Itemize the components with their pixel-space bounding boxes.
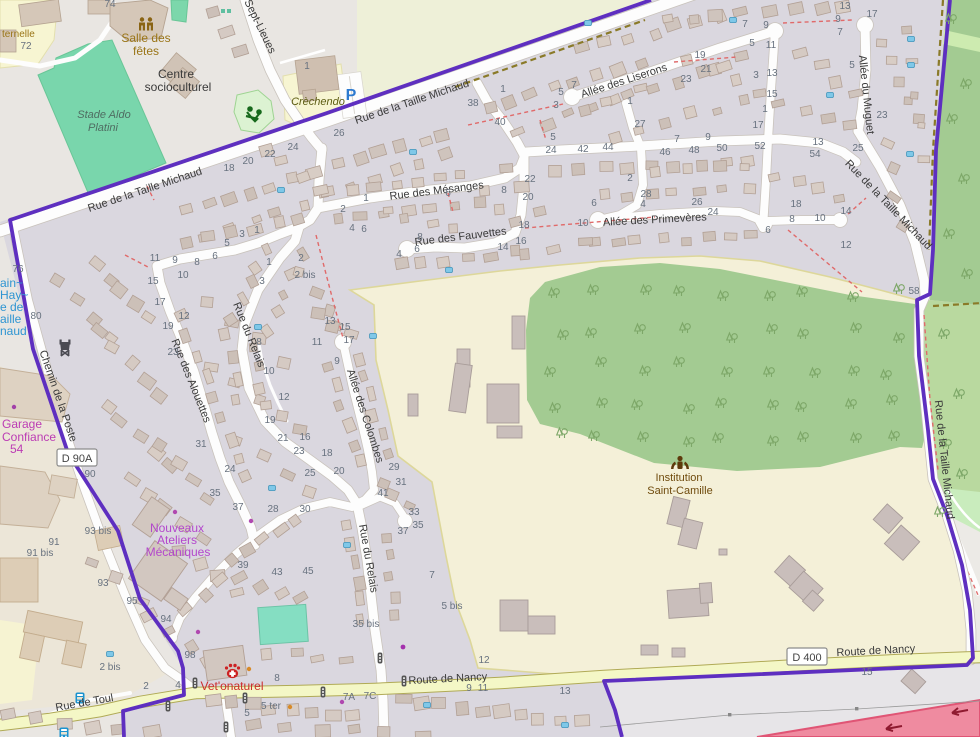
svg-text:9: 9 [334,356,340,367]
svg-text:21: 21 [700,64,712,75]
svg-text:9: 9 [172,255,178,266]
svg-text:26: 26 [691,197,703,208]
svg-text:Saint-Camille: Saint-Camille [647,485,712,497]
svg-text:8: 8 [256,337,262,348]
svg-text:13: 13 [766,68,778,79]
svg-text:6: 6 [414,244,420,255]
svg-text:10: 10 [577,218,589,229]
svg-text:9: 9 [763,20,769,31]
svg-text:15: 15 [147,276,159,287]
svg-text:5 bis: 5 bis [441,601,462,612]
svg-text:13: 13 [839,1,851,12]
svg-text:Institution: Institution [655,472,702,484]
svg-text:37: 37 [232,502,244,513]
svg-text:94: 94 [160,614,172,625]
svg-text:3: 3 [553,100,559,111]
svg-text:23: 23 [293,446,305,457]
svg-text:16: 16 [299,432,311,443]
svg-text:6: 6 [591,198,597,209]
svg-text:1: 1 [762,104,768,115]
svg-text:11: 11 [150,253,161,264]
svg-text:44: 44 [602,142,614,153]
svg-text:20: 20 [522,192,534,203]
svg-text:90: 90 [84,469,96,480]
svg-text:2: 2 [627,173,633,184]
svg-text:25: 25 [852,143,864,154]
svg-text:21: 21 [277,433,289,444]
svg-text:3: 3 [259,276,265,287]
svg-text:16: 16 [515,236,527,247]
svg-text:23: 23 [680,74,692,85]
svg-text:18: 18 [518,220,530,231]
svg-text:24: 24 [707,207,719,218]
svg-text:76: 76 [12,264,24,275]
svg-text:72: 72 [20,41,32,52]
svg-text:4: 4 [349,223,355,234]
svg-text:3: 3 [753,70,759,81]
svg-text:10: 10 [177,270,189,281]
svg-text:17: 17 [866,9,878,20]
svg-text:41: 41 [377,488,389,499]
svg-text:40: 40 [494,117,506,128]
svg-text:22: 22 [264,149,276,160]
svg-text:20: 20 [333,466,345,477]
svg-text:1: 1 [500,84,506,95]
svg-text:23: 23 [876,110,888,121]
svg-text:74: 74 [104,0,116,10]
svg-text:4: 4 [396,249,402,260]
svg-text:2 bis: 2 bis [294,270,315,281]
svg-text:13: 13 [559,686,571,697]
svg-text:2: 2 [298,253,304,264]
svg-text:fêtes: fêtes [133,44,159,58]
svg-text:12: 12 [478,655,490,666]
svg-text:Mécaniques: Mécaniques [146,545,211,559]
svg-text:7: 7 [674,134,680,145]
svg-text:91: 91 [48,537,60,548]
svg-text:9: 9 [466,683,472,694]
svg-text:25: 25 [304,468,316,479]
svg-text:17: 17 [343,335,355,346]
svg-text:naud: naud [0,324,27,338]
svg-text:Salle des: Salle des [121,31,170,45]
svg-text:6: 6 [765,225,771,236]
svg-text:24: 24 [545,145,557,156]
svg-text:8: 8 [789,214,795,225]
svg-text:5: 5 [749,38,755,49]
svg-text:Stade Aldo: Stade Aldo [77,109,130,121]
svg-text:18: 18 [790,199,802,210]
svg-text:13: 13 [324,316,336,327]
svg-text:22: 22 [524,174,536,185]
svg-text:10: 10 [263,366,275,377]
svg-text:54: 54 [10,442,24,456]
svg-text:7: 7 [429,570,435,581]
svg-text:17: 17 [154,297,166,308]
svg-text:93 bis: 93 bis [85,526,112,537]
svg-text:8: 8 [501,185,507,196]
svg-text:socioculturel: socioculturel [145,80,212,94]
svg-text:P: P [346,87,357,104]
svg-text:5 ter: 5 ter [261,701,282,712]
svg-text:91 bis: 91 bis [27,548,54,559]
svg-text:14: 14 [497,242,509,253]
svg-text:1: 1 [627,96,633,107]
svg-text:5: 5 [849,60,855,71]
svg-text:18: 18 [321,448,333,459]
svg-text:38: 38 [467,98,479,109]
svg-text:D 90A: D 90A [62,453,93,465]
svg-text:2: 2 [143,681,149,692]
svg-text:5: 5 [244,708,250,719]
svg-text:52: 52 [754,141,766,152]
svg-text:4: 4 [640,199,646,210]
svg-text:D 400: D 400 [792,652,821,664]
svg-text:95: 95 [126,596,138,607]
svg-text:20: 20 [242,156,254,167]
svg-text:39: 39 [237,560,249,571]
svg-text:98: 98 [184,650,196,661]
svg-text:1: 1 [254,225,260,236]
svg-text:80: 80 [30,311,42,322]
svg-text:Crèchendo: Crèchendo [291,96,345,108]
svg-text:37: 37 [397,526,409,537]
svg-text:18: 18 [223,163,235,174]
svg-text:14: 14 [840,206,852,217]
svg-text:2: 2 [340,204,346,215]
svg-text:11: 11 [766,40,777,51]
svg-text:Garage: Garage [2,417,42,431]
svg-text:10: 10 [814,213,826,224]
svg-text:15: 15 [861,667,873,678]
svg-text:46: 46 [659,147,671,158]
svg-text:ternelle: ternelle [2,29,35,40]
svg-text:11: 11 [478,683,489,694]
svg-text:9: 9 [705,132,711,143]
svg-text:1: 1 [363,193,369,204]
svg-text:31: 31 [395,477,407,488]
svg-text:15: 15 [766,89,778,100]
svg-text:12: 12 [840,240,852,251]
svg-text:24: 24 [287,142,299,153]
svg-text:Centre: Centre [158,67,194,81]
svg-text:45: 45 [302,566,314,577]
svg-text:11: 11 [312,337,323,348]
svg-text:28: 28 [267,504,279,515]
svg-text:9: 9 [835,14,841,25]
svg-text:7: 7 [571,80,577,91]
svg-text:Vet'onaturel: Vet'onaturel [200,679,263,693]
svg-text:12: 12 [278,392,290,403]
svg-text:48: 48 [688,145,700,156]
svg-text:35 bis: 35 bis [353,619,380,630]
svg-text:27: 27 [634,119,646,130]
svg-text:15: 15 [339,322,351,333]
svg-text:12: 12 [178,311,190,322]
svg-text:35: 35 [412,520,424,531]
svg-text:3: 3 [239,229,245,240]
svg-text:26: 26 [333,128,345,139]
svg-text:5: 5 [550,132,556,143]
svg-text:7C: 7C [364,691,377,702]
svg-text:43: 43 [271,567,283,578]
svg-text:8: 8 [417,232,423,243]
svg-text:6: 6 [212,251,218,262]
svg-text:4: 4 [175,680,181,691]
svg-text:58: 58 [908,286,920,297]
svg-text:6: 6 [361,224,367,235]
svg-text:13: 13 [812,137,824,148]
svg-text:54: 54 [809,149,821,160]
svg-text:19: 19 [264,415,276,426]
svg-text:50: 50 [716,143,728,154]
svg-text:7: 7 [837,27,843,38]
svg-text:7: 7 [742,19,748,30]
svg-text:33: 33 [408,507,420,518]
svg-text:29: 29 [388,462,400,473]
svg-text:1: 1 [304,61,310,72]
svg-text:8: 8 [194,257,200,268]
svg-text:2 bis: 2 bis [99,662,120,673]
svg-text:30: 30 [299,504,311,515]
svg-text:23: 23 [167,347,179,358]
svg-text:Platini: Platini [88,122,119,134]
svg-text:35: 35 [209,488,221,499]
svg-text:5: 5 [224,238,230,249]
svg-text:8: 8 [274,673,280,684]
svg-text:1: 1 [266,257,272,268]
svg-text:5: 5 [558,87,564,98]
svg-text:31: 31 [195,439,207,450]
svg-text:7A: 7A [343,692,356,703]
svg-text:6: 6 [445,188,451,199]
svg-text:19: 19 [162,321,174,332]
svg-text:17: 17 [752,120,764,131]
svg-text:42: 42 [577,144,589,155]
svg-text:19: 19 [694,50,706,61]
svg-text:24: 24 [224,464,236,475]
svg-text:93: 93 [97,578,109,589]
